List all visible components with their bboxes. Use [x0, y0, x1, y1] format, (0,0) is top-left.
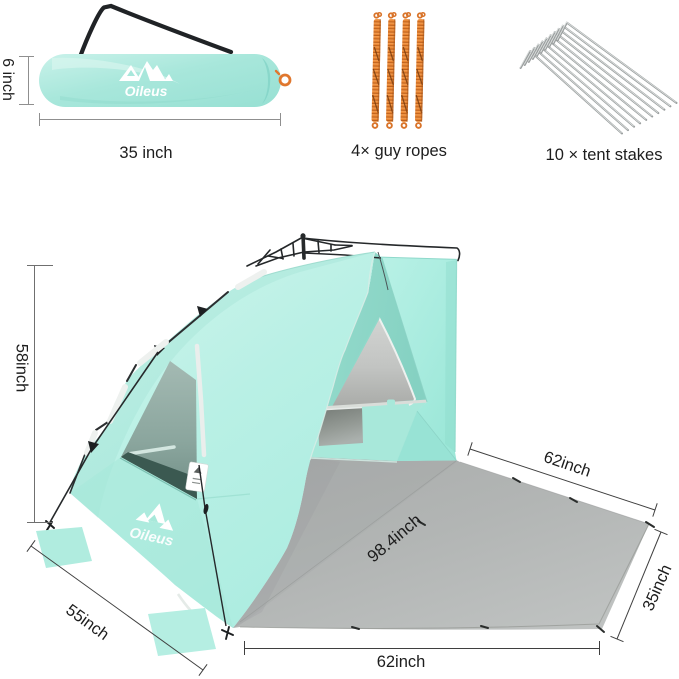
svg-text:35inch: 35inch	[639, 562, 675, 614]
svg-text:62inch: 62inch	[541, 448, 593, 481]
svg-text:55inch: 55inch	[62, 601, 112, 644]
svg-text:4× guy ropes: 4× guy ropes	[351, 142, 447, 160]
svg-text:10 × tent stakes: 10 × tent stakes	[546, 146, 663, 164]
svg-text:Oileus: Oileus	[125, 83, 168, 99]
svg-text:6 inch: 6 inch	[0, 58, 16, 101]
svg-text:62inch: 62inch	[377, 653, 426, 671]
svg-text:58inch: 58inch	[13, 344, 31, 393]
svg-text:35 inch: 35 inch	[119, 144, 172, 162]
